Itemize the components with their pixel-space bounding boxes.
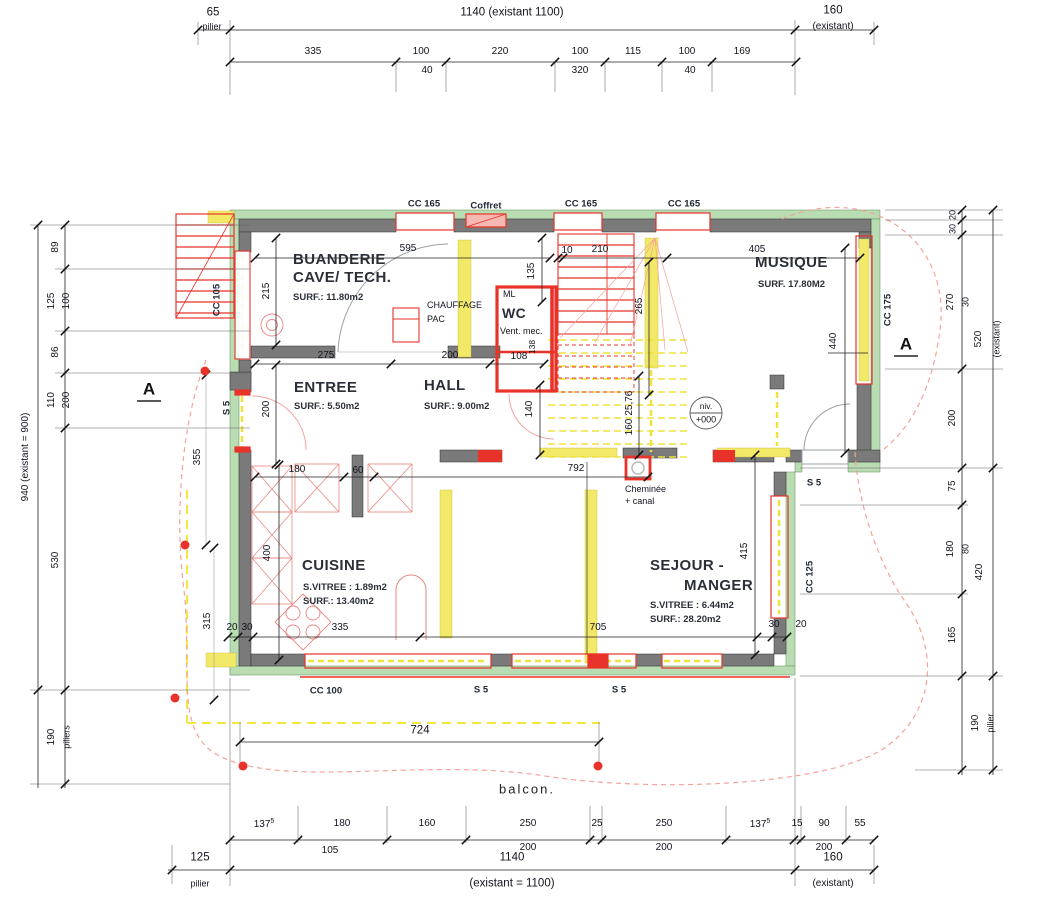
room-buanderie-surf: SURF.: 11.80m2 xyxy=(293,293,363,303)
room-cuisine-name: CUISINE xyxy=(302,558,366,573)
label-coffret: Coffret xyxy=(470,201,501,211)
label-niv-value: +000 xyxy=(696,416,716,425)
dim-interior: 792 xyxy=(568,464,585,474)
dim-top-seg: 169 xyxy=(734,47,751,57)
dim-bottom-seg: 160 xyxy=(419,819,436,829)
dim-left-overall: 940 (existant = 900) xyxy=(21,413,31,502)
dim-bottom-overall-note: (existant = 1100) xyxy=(469,878,554,890)
room-buanderie-name2: CAVE/ TECH. xyxy=(293,270,391,285)
dim-left-sec: 100 xyxy=(62,293,72,310)
dim-left-sec: 200 xyxy=(62,392,72,409)
dim-bottom-seg: 55 xyxy=(854,819,865,829)
label-cc165: CC 165 xyxy=(668,199,700,209)
dim-interior: 355 xyxy=(193,449,203,466)
room-wc-name: WC xyxy=(502,306,526,320)
balcon-label: balcon. xyxy=(499,783,555,796)
dim-bottom-seg: 1375 xyxy=(254,818,275,830)
dim-interior: 10 xyxy=(561,246,572,256)
dim-right-sec: 30 xyxy=(962,297,971,307)
label-cc175: CC 175 xyxy=(883,294,893,326)
dim-interior: 595 xyxy=(400,244,417,254)
dim-bottom-seg: 1375 xyxy=(750,818,771,830)
dim-interior: 60 xyxy=(352,466,363,476)
dim-bottom-seg: 250 xyxy=(520,819,537,829)
dim-top-right-label: (existant) xyxy=(812,22,853,32)
dim-interior: 16025,76 xyxy=(625,391,635,436)
dim-right-seg: 165 xyxy=(948,627,958,644)
dim-interior: 705 xyxy=(590,623,607,633)
room-entree-name: ENTREE xyxy=(294,380,357,395)
section-marker-a-left: A xyxy=(143,381,155,398)
label-cc105: CC 105 xyxy=(212,284,222,316)
dim-bottom-seg: 25 xyxy=(591,819,602,829)
label-s5: S 5 xyxy=(807,478,821,488)
label-ml: ML xyxy=(503,290,516,299)
dim-interior: 30 xyxy=(768,620,779,630)
room-entree-surf: SURF.: 5.50m2 xyxy=(294,402,359,412)
dim-interior: 215 xyxy=(262,283,272,300)
dim-right-seg: 200 xyxy=(948,410,958,427)
label-niv: niv. xyxy=(700,402,713,411)
dim-left-seg: 125 xyxy=(47,293,57,310)
dim-left-seg: 89 xyxy=(51,241,61,252)
dim-right-seg: 180 xyxy=(946,541,956,558)
dim-right-seg: 75 xyxy=(948,480,958,491)
dim-interior: 440 xyxy=(829,333,839,350)
dim-bottom-seg: 180 xyxy=(334,819,351,829)
dim-interior: 180 xyxy=(289,465,306,475)
dim-right-pilier-value: 190 xyxy=(971,715,981,732)
label-cheminee-canal: + canal xyxy=(625,497,654,506)
dim-interior: 135 xyxy=(527,263,537,280)
room-musique-surf: SURF. 17.80M2 xyxy=(758,280,825,290)
label-s5: S 5 xyxy=(474,685,488,695)
dim-top-pilier-label: pilier xyxy=(202,23,221,32)
dim-interior: 20 xyxy=(795,620,806,630)
dim-top-seg: 335 xyxy=(305,47,322,57)
dim-top-overall: 1140 (existant 1100) xyxy=(460,7,563,19)
dim-bottom-seg: 90 xyxy=(818,819,829,829)
dim-top-seg: 220 xyxy=(492,47,509,57)
room-wc-vent: Vent. mec. xyxy=(500,327,543,336)
dim-right-overall-upper: 520 xyxy=(974,331,984,348)
label-chauffage: CHAUFFAGE xyxy=(427,301,482,310)
dim-interior: 200 xyxy=(442,351,459,361)
dim-interior: 400 xyxy=(263,545,273,562)
room-sejour-vitree: S.VITREE : 6.44m2 xyxy=(650,601,734,611)
dim-right-overall-lower: 420 xyxy=(975,564,985,581)
room-sejour-name: SEJOUR - xyxy=(650,558,724,573)
dim-right-pilier-label: pilier xyxy=(987,713,996,732)
dim-left-pilier-value: 190 xyxy=(47,729,57,746)
dim-top-seg: 115 xyxy=(625,47,641,57)
dim-bottom-sub: 105 xyxy=(322,846,339,856)
label-cc165: CC 165 xyxy=(408,199,440,209)
dim-top-seg: 100 xyxy=(679,47,696,57)
label-s5: S 5 xyxy=(222,401,232,415)
dim-left-seg: 110 xyxy=(47,392,57,408)
room-cuisine-surf: SURF.: 13.40m2 xyxy=(303,597,374,607)
dim-interior: 415 xyxy=(740,543,750,560)
dim-interior: 30 xyxy=(241,623,252,633)
room-sejour-surf: SURF.: 28.20m2 xyxy=(650,615,721,625)
label-s5: S 5 xyxy=(612,685,626,695)
dim-top-seg: 100 xyxy=(413,47,430,57)
dim-right-seg: 20 xyxy=(949,210,958,220)
floor-plan-drawing: 65 pilier 1140 (existant 1100) 160 (exis… xyxy=(0,0,1061,900)
dim-interior: 138 xyxy=(528,340,537,354)
dim-interior: 265 xyxy=(635,298,645,315)
dim-interior: 210 xyxy=(592,245,609,255)
dim-top-pilier-value: 65 xyxy=(207,7,220,19)
label-chauffage-pac: PAC xyxy=(427,315,445,324)
dim-right-overall-upper-note: (existant) xyxy=(993,320,1002,357)
room-buanderie-name: BUANDERIE xyxy=(293,252,386,267)
label-cheminee: Cheminée xyxy=(625,485,666,494)
dim-top-seg: 100 xyxy=(572,47,589,57)
dim-interior: 315 xyxy=(203,613,213,630)
section-marker-a-right: A xyxy=(900,336,912,353)
dim-interior: 140 xyxy=(525,401,535,418)
dim-top-sub: 320 xyxy=(572,66,589,76)
dim-interior: 335 xyxy=(332,623,349,633)
room-sejour-name2: MANGER xyxy=(684,578,753,593)
dim-top-sub: 40 xyxy=(684,66,695,76)
dim-interior: 108 xyxy=(511,352,528,362)
dim-interior: 405 xyxy=(749,245,766,255)
dim-left-seg: 530 xyxy=(51,552,61,569)
dim-right-sec: 80 xyxy=(962,544,971,554)
room-cuisine-vitree: S.VITREE : 1.89m2 xyxy=(303,583,387,593)
dim-bottom-pilier-label: pilier xyxy=(190,880,209,889)
label-cc125: CC 125 xyxy=(805,561,815,593)
dim-right-seg: 30 xyxy=(949,224,958,234)
dim-top-right-value: 160 xyxy=(823,5,842,17)
dim-bottom-overall-value: 1140 xyxy=(500,852,525,864)
dim-bottom-seg: 15 xyxy=(791,819,802,829)
dim-bottom-sub: 200 xyxy=(656,843,673,853)
room-hall-name: HALL xyxy=(424,378,466,393)
dim-interior: 200 xyxy=(262,401,272,418)
dim-bottom-pilier-value: 125 xyxy=(190,852,209,864)
room-musique-name: MUSIQUE xyxy=(755,255,828,270)
floorplan-linework xyxy=(0,0,1061,900)
label-cc100: CC 100 xyxy=(310,686,342,696)
dim-balcony-width: 724 xyxy=(410,725,429,737)
dim-right-seg: 270 xyxy=(946,294,956,311)
dim-interior: 20 xyxy=(226,623,237,633)
dim-bottom-right-note: (existant) xyxy=(812,879,853,889)
dim-left-pilier-label: piliers xyxy=(63,725,72,749)
room-hall-surf: SURF.: 9.00m2 xyxy=(424,402,489,412)
dim-interior: 275 xyxy=(318,351,335,361)
dim-left-seg: 86 xyxy=(51,346,61,357)
dim-bottom-seg: 250 xyxy=(656,819,673,829)
dim-bottom-right-value: 160 xyxy=(823,852,842,864)
label-cc165: CC 165 xyxy=(565,199,597,209)
dim-top-sub: 40 xyxy=(421,66,432,76)
